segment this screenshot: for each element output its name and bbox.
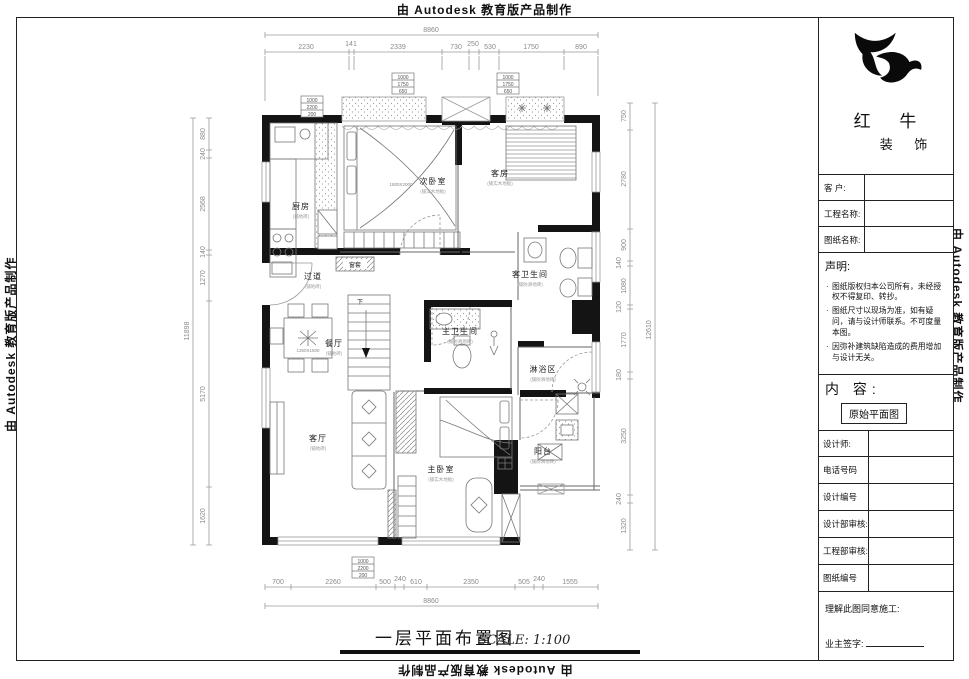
field-drawing-name-label: 图纸名称:	[819, 227, 865, 252]
field-project-name-value	[865, 201, 953, 226]
cad-sheet: 由 Autodesk 教育版产品制作 由 Autodesk 教育版产品制作 由 …	[0, 0, 969, 679]
room-sub-dining: (铺地砖)	[326, 350, 343, 357]
owner-signature-label: 业主签字:	[825, 639, 864, 649]
dim-label: 500	[379, 579, 391, 586]
room-label-kitchen: 厨房	[292, 201, 310, 211]
field-client-value	[865, 175, 953, 200]
dim-label: 8860	[423, 598, 439, 605]
window-tag-value: 1750	[397, 82, 408, 88]
company-logo: 红 牛 装 饰	[819, 18, 953, 175]
dim-label: 730	[450, 44, 462, 51]
room-label-guest-room: 客房	[491, 168, 509, 178]
dim-label: 3250	[621, 428, 628, 444]
field-engineering-dept-review: 工程部审核:	[819, 538, 953, 565]
dim-label: 1770	[621, 332, 628, 348]
room-label-guest-bath: 客卫生间	[512, 269, 548, 279]
dim-label: 240	[200, 148, 207, 160]
logo-text-line1: 红 牛	[829, 107, 953, 132]
field-drawing-name: 图纸名称:	[819, 227, 953, 253]
title-block: 红 牛 装 饰 客 户: 工程名称: 图纸名称: 声明: 图纸版权归本公司所有，…	[818, 17, 954, 661]
dim-label: 1750	[523, 44, 539, 51]
dim-label: 240	[394, 576, 406, 583]
statement-title: 声明:	[825, 260, 948, 275]
dim-label: 12610	[646, 320, 653, 340]
field-engineering-dept-review-value	[869, 538, 953, 564]
dim-label: 2568	[200, 196, 207, 212]
statement-item: 因弥补建筑缺陷造成的费用增加与设计无关。	[825, 342, 948, 364]
dim-label: 180	[616, 369, 623, 381]
dim-label: 1320	[621, 518, 628, 534]
dim-label: 2339	[390, 44, 406, 51]
dim-label: 250	[467, 41, 479, 48]
field-drawing-name-value	[865, 227, 953, 252]
dim-label: 2260	[325, 579, 341, 586]
signature-agreement-text: 理解此图同意施工:	[825, 602, 947, 615]
field-drawing-number-label: 图纸编号	[819, 565, 869, 591]
room-sub-balcony: (铺防滑地砖)	[530, 458, 556, 465]
dim-label: 140	[200, 246, 207, 258]
dim-label: 750	[621, 110, 628, 122]
field-design-number-label: 设计编号	[819, 484, 869, 510]
dim-label: 530	[484, 44, 496, 51]
room-sub-master-bedroom: (铺实木地板)	[428, 476, 454, 483]
field-designer: 设计师:	[819, 431, 953, 458]
statement-item: 图纸版权归本公司所有，未经授权不得复印、转抄。	[825, 282, 948, 304]
statement-item: 图纸尺寸以现场为准，如有疑问，请与设计师联系。不可度量本图。	[825, 306, 948, 339]
drawing-scale: SCALE: 1:100	[478, 633, 570, 648]
field-design-dept-review: 设计部审核:	[819, 511, 953, 538]
dim-label: 240	[616, 493, 623, 505]
title-underline	[340, 650, 640, 654]
dim-label: 610	[410, 579, 422, 586]
room-label-balcony: 阳台	[534, 446, 552, 456]
room-label-corridor: 过道	[304, 271, 322, 281]
window-tag-value: 2200	[306, 105, 317, 111]
dim-label: 11898	[184, 321, 191, 340]
field-project-name: 工程名称:	[819, 201, 953, 227]
statement-section: 声明: 图纸版权归本公司所有，未经授权不得复印、转抄。 图纸尺寸以现场为准，如有…	[819, 253, 953, 375]
window-tag-value: 1750	[502, 82, 513, 88]
room-label-master-bath: 主卫生间	[442, 326, 478, 336]
room-sub-living: (铺地砖)	[310, 445, 327, 452]
bed-size-label: 1800X2000	[389, 182, 413, 187]
room-label-dining: 餐厅	[325, 339, 343, 348]
room-label-master-bedroom: 主卧室	[428, 464, 455, 474]
dim-label: 8860	[423, 27, 439, 34]
dim-label: 1270	[200, 270, 207, 286]
window-tag-value: 1000	[502, 75, 513, 81]
window-tag-value: 1000	[357, 559, 368, 565]
room-sub-shower: (铺防滑地砖)	[530, 376, 556, 383]
logo-text-line2: 装 饰	[863, 134, 953, 153]
dim-label: 1620	[200, 508, 207, 524]
room-sub-corridor: (铺地砖)	[305, 283, 322, 290]
dim-label: 700	[272, 579, 284, 586]
dim-label: 890	[575, 44, 587, 51]
bull-logo-icon	[847, 28, 925, 100]
field-drawing-number-value	[869, 565, 953, 591]
content-section: 内 容: 原始平面图	[819, 375, 953, 431]
dim-label: 1080	[621, 278, 628, 294]
window-tag-value: 1000	[306, 98, 317, 104]
field-design-number-value	[869, 484, 953, 510]
stair-down-label: 下	[357, 299, 363, 306]
content-value: 原始平面图	[841, 403, 907, 424]
window-tag-value: 1000	[397, 75, 408, 81]
field-client-label: 客 户:	[819, 175, 865, 200]
room-sub-second-bedroom: (铺实木地板)	[420, 188, 446, 195]
window-tag-value: 2200	[357, 566, 368, 572]
room-label-second-bedroom: 次卧室	[420, 176, 447, 186]
dim-label: 141	[345, 41, 357, 48]
dim-label: 880	[200, 128, 207, 140]
room-sub-kitchen: (铺地砖)	[293, 213, 310, 220]
dim-label: 505	[518, 579, 530, 586]
content-label: 内 容:	[825, 381, 881, 397]
dim-label: 2780	[621, 171, 628, 187]
field-design-dept-review-value	[869, 511, 953, 537]
field-design-number: 设计编号	[819, 484, 953, 511]
field-designer-label: 设计师:	[819, 431, 869, 457]
room-sub-guest-bath: (铺防滑地砖)	[517, 281, 543, 288]
window-tag-value: 200	[359, 573, 368, 579]
room-label-living: 客厅	[309, 433, 327, 443]
window-tag-value: 650	[504, 89, 513, 95]
dim-label: 2350	[463, 579, 479, 586]
field-drawing-number: 图纸编号	[819, 565, 953, 592]
signature-section: 理解此图同意施工: 业主签字:	[819, 592, 953, 660]
window-tag-value: 650	[399, 89, 408, 95]
room-sub-guest-room: (铺实木地板)	[487, 180, 513, 187]
dim-label: 1555	[562, 579, 578, 586]
dim-label: 120	[616, 301, 623, 313]
field-client: 客 户:	[819, 175, 953, 201]
room-sub-master-bath: (铺防滑地砖)	[447, 338, 473, 345]
table-size-label: 1350X1500	[296, 348, 320, 353]
field-design-dept-review-label: 设计部审核:	[819, 511, 869, 537]
owner-signature-line	[866, 638, 924, 647]
field-designer-value	[869, 431, 953, 457]
dim-label: 240	[533, 576, 545, 583]
field-phone-value	[869, 457, 953, 483]
dim-label: 5170	[200, 386, 207, 402]
field-project-name-label: 工程名称:	[819, 201, 865, 226]
dim-label: 2230	[298, 44, 314, 51]
field-phone: 电话号码	[819, 457, 953, 484]
dim-label: 900	[621, 239, 628, 251]
field-engineering-dept-review-label: 工程部审核:	[819, 538, 869, 564]
room-label-shower: 淋浴区	[530, 364, 557, 374]
window-casing-label: 窗套	[349, 261, 361, 269]
dim-label: 140	[616, 257, 623, 269]
window-tag-value: 200	[308, 112, 317, 118]
field-phone-label: 电话号码	[819, 457, 869, 483]
